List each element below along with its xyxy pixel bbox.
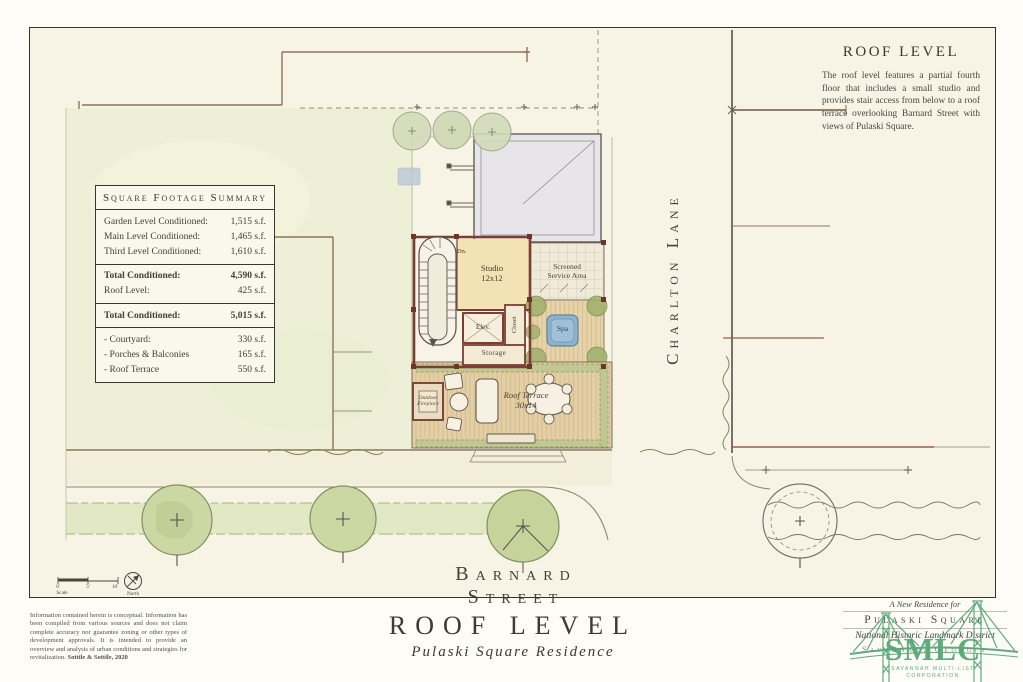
attribution: Sottile & Sottile, 2020 bbox=[68, 654, 128, 661]
outdoor-fireplace-label: Outdoor Fireplace bbox=[410, 395, 446, 408]
table-row: - Roof Terrace 550 s.f. bbox=[96, 363, 274, 378]
square-footage-summary-table: Square Footage Summary Garden Level Cond… bbox=[95, 185, 275, 383]
row-label: Third Level Conditioned: bbox=[104, 247, 201, 257]
table-row: Third Level Conditioned: 1,610 s.f. bbox=[96, 244, 274, 259]
row-value: 1,515 s.f. bbox=[231, 217, 266, 227]
sheet-title-block: ROOF LEVEL Pulaski Square Residence bbox=[363, 611, 663, 661]
row-label: Total Conditioned: bbox=[104, 271, 180, 281]
table-group-subtotal: Total Conditioned: 4,590 s.f. Roof Level… bbox=[96, 265, 274, 304]
elevator-label: Elev. bbox=[465, 323, 501, 331]
spa-label: Spa bbox=[547, 325, 578, 334]
roof-level-note: ROOF LEVEL The roof level features a par… bbox=[822, 44, 980, 134]
row-value: 165 s.f. bbox=[238, 350, 266, 360]
smlc-bridge-logo: SMLC SAVANNAH MULTI-LIST CORPORATION bbox=[845, 597, 1023, 682]
sheet-title: ROOF LEVEL bbox=[363, 611, 663, 641]
table-group-levels: Garden Level Conditioned: 1,515 s.f. Mai… bbox=[96, 210, 274, 265]
table-row: - Courtyard: 330 s.f. bbox=[96, 332, 274, 347]
stair-down-label: Dn. bbox=[457, 248, 483, 255]
row-value: 4,590 s.f. bbox=[231, 271, 266, 281]
row-label: - Roof Terrace bbox=[104, 365, 159, 375]
north-caption: North bbox=[123, 591, 143, 597]
note-body: The roof level features a partial fourth… bbox=[822, 70, 980, 134]
logo-caption-1: SAVANNAH MULTI-LIST bbox=[891, 666, 975, 672]
note-heading: ROOF LEVEL bbox=[822, 44, 980, 61]
row-label: - Porches & Balconies bbox=[104, 350, 189, 360]
sheet-subtitle: Pulaski Square Residence bbox=[363, 644, 663, 661]
row-value: 1,610 s.f. bbox=[231, 247, 266, 257]
table-row: Total Conditioned: 4,590 s.f. bbox=[96, 269, 274, 284]
row-label: Roof Level: bbox=[104, 286, 150, 296]
row-label: Garden Level Conditioned: bbox=[104, 217, 208, 227]
row-label: - Courtyard: bbox=[104, 335, 151, 345]
row-label: Total Conditioned: bbox=[104, 311, 180, 321]
row-value: 1,465 s.f. bbox=[231, 232, 266, 242]
roof-terrace-label: Roof Terrace 30x14 bbox=[486, 391, 566, 411]
row-value: 425 s.f. bbox=[238, 286, 266, 296]
closet-label: Closet bbox=[511, 305, 519, 345]
disclaimer-text: Information contained herein is conceptu… bbox=[30, 612, 187, 662]
table-row: Main Level Conditioned: 1,465 s.f. bbox=[96, 229, 274, 244]
scale-caption: Scale bbox=[53, 590, 71, 596]
table-row: Total Conditioned: 5,015 s.f. bbox=[96, 308, 274, 323]
logo-caption-2: CORPORATION bbox=[906, 673, 959, 679]
studio-label: Studio 12x12 bbox=[462, 264, 522, 284]
scale-tick-10: 10' bbox=[109, 584, 121, 590]
scale-tick-5: 5' bbox=[83, 584, 93, 590]
table-title: Square Footage Summary bbox=[96, 186, 274, 210]
table-row: Garden Level Conditioned: 1,515 s.f. bbox=[96, 214, 274, 229]
table-row: - Porches & Balconies 165 s.f. bbox=[96, 347, 274, 362]
screened-service-area-label: Screened Service Area bbox=[531, 263, 603, 280]
table-group-total: Total Conditioned: 5,015 s.f. bbox=[96, 304, 274, 328]
row-value: 330 s.f. bbox=[238, 335, 266, 345]
row-value: 5,015 s.f. bbox=[231, 311, 266, 321]
row-label: Main Level Conditioned: bbox=[104, 232, 200, 242]
street-label-barnard: Barnard Street bbox=[416, 563, 616, 609]
table-row: Roof Level: 425 s.f. bbox=[96, 284, 274, 299]
row-value: 550 s.f. bbox=[238, 365, 266, 375]
table-group-outdoor: - Courtyard: 330 s.f. - Porches & Balcon… bbox=[96, 328, 274, 382]
logo-monogram: SMLC bbox=[885, 631, 981, 667]
street-label-charlton: Charlton Lane bbox=[663, 179, 683, 379]
storage-label: Storage bbox=[466, 350, 522, 358]
